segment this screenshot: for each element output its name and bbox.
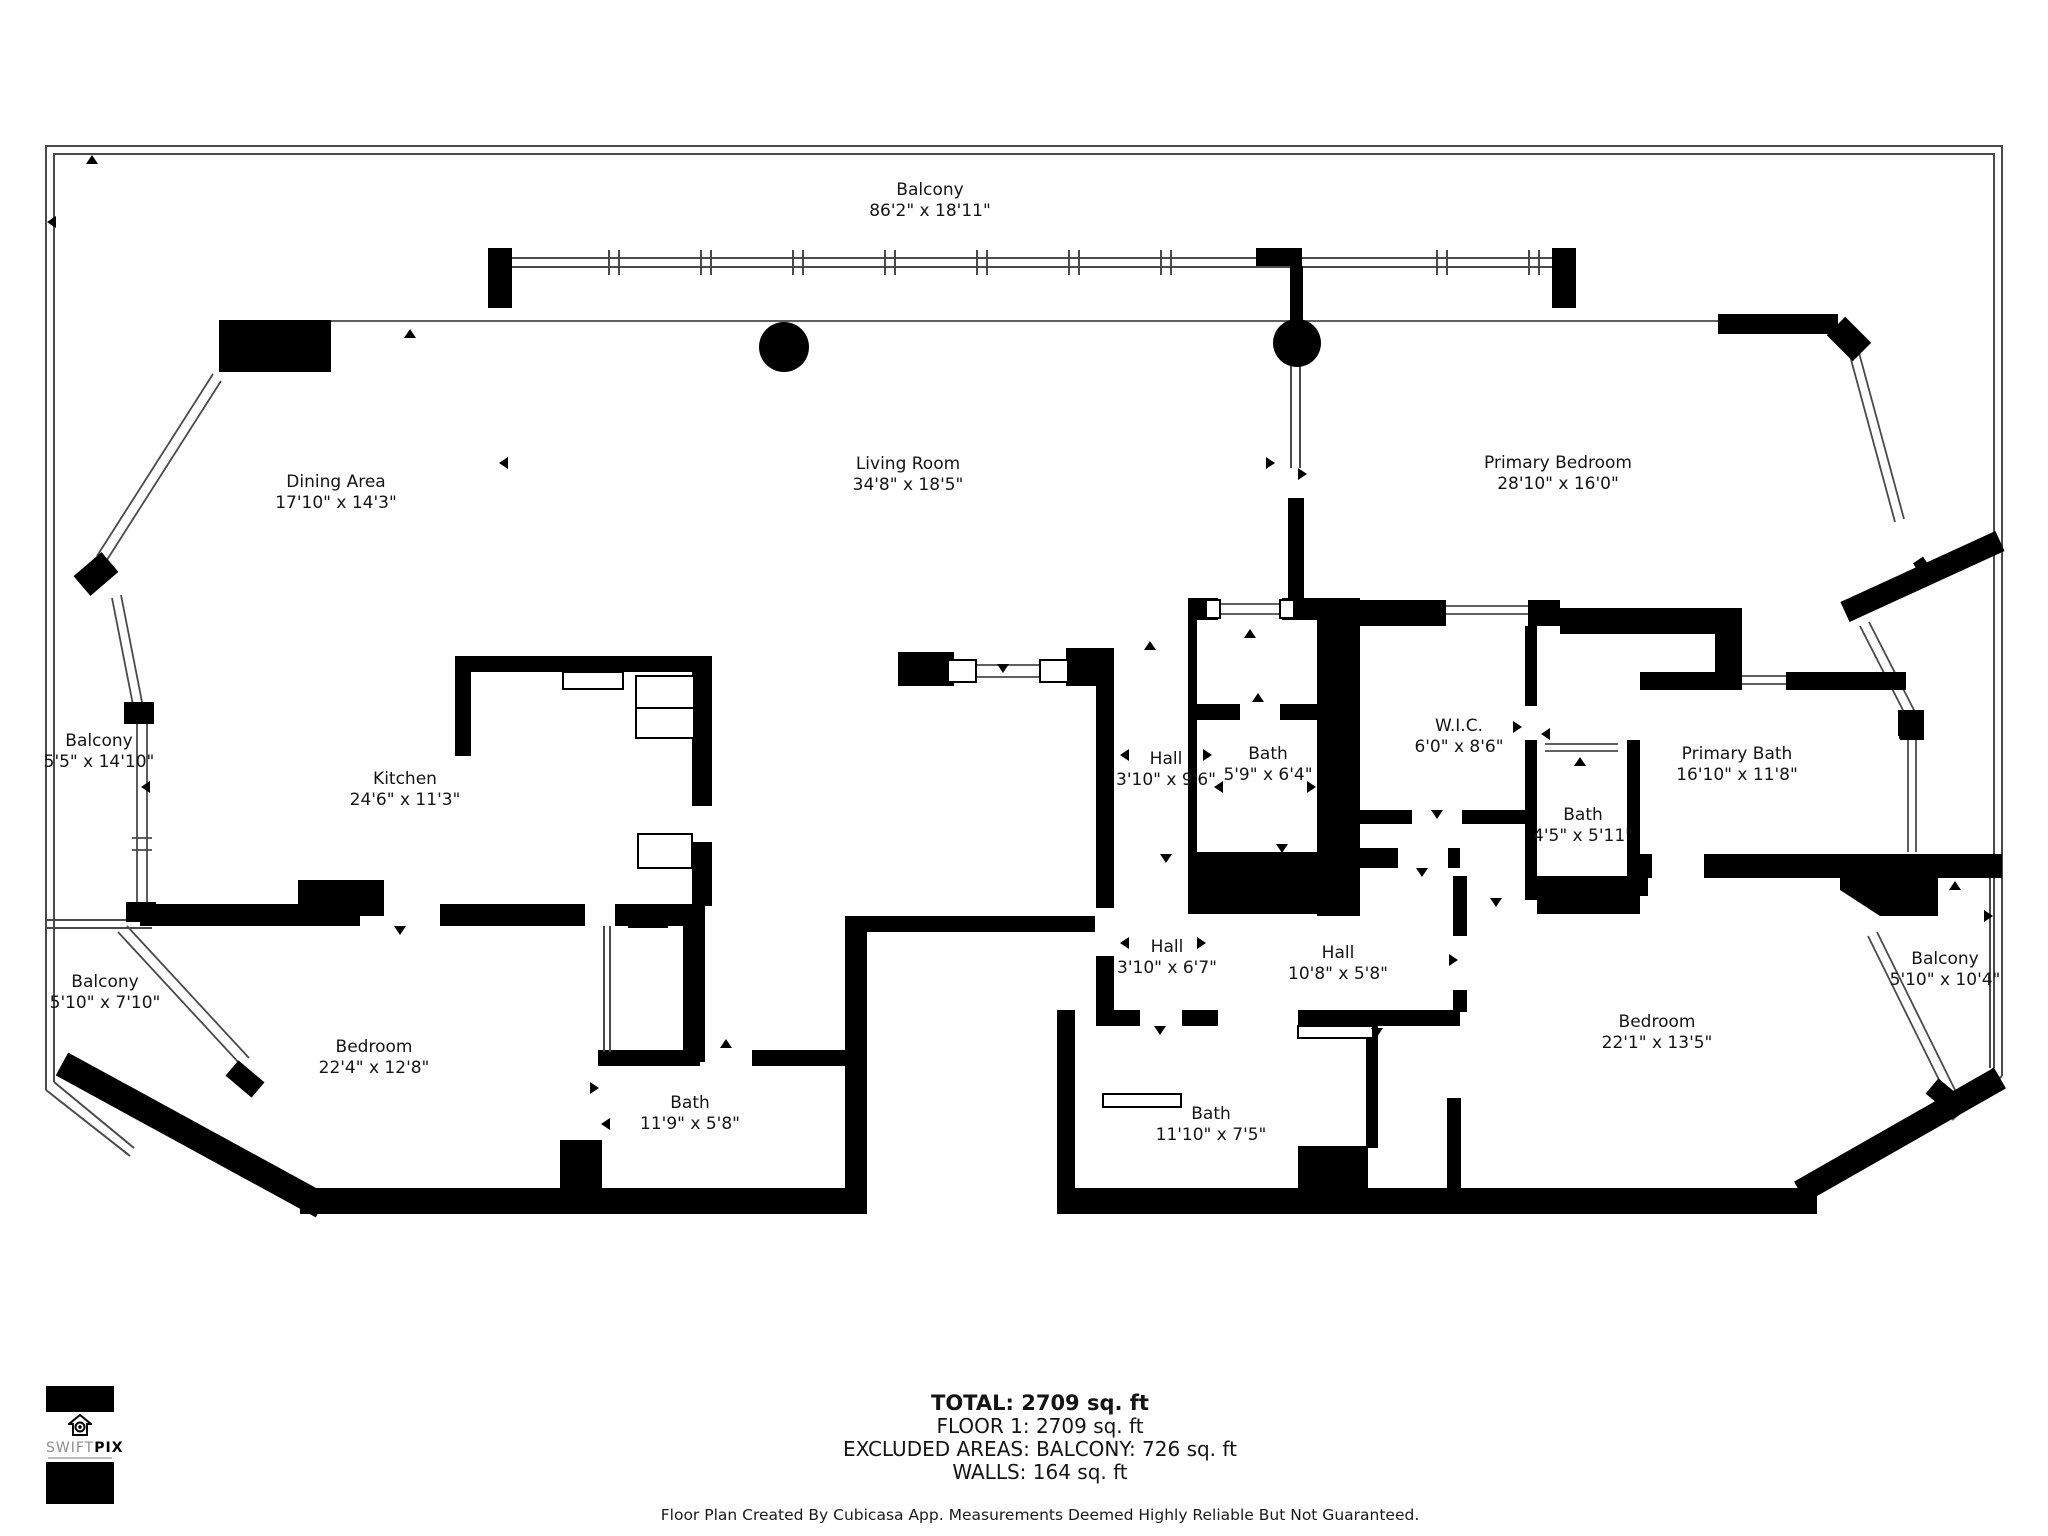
room-label-hall-lower: Hall3'10" x 6'7" — [1117, 937, 1217, 979]
boundary-lines — [46, 146, 2002, 1156]
house-camera-icon — [68, 1414, 92, 1436]
room-label-balcony-left: Balcony5'5" x 14'10" — [44, 731, 155, 773]
room-label-balcony-lower-left: Balcony5'10" x 7'10" — [50, 972, 161, 1014]
excluded-area-text: EXCLUDED AREAS: BALCONY: 726 sq. ft — [843, 1438, 1237, 1461]
balcony-railing — [512, 250, 1552, 275]
logo-block-top — [46, 1386, 114, 1412]
logo-tagline-rule — [48, 1457, 112, 1459]
column-icons — [759, 319, 1321, 372]
room-label-kitchen: Kitchen24'6" x 11'3" — [350, 769, 461, 811]
floor-plan-page: Balcony86'2" x 18'11" Dining Area17'10" … — [0, 0, 2048, 1536]
room-label-balcony-top: Balcony86'2" x 18'11" — [869, 180, 991, 222]
room-label-hall-wide: Hall10'8" x 5'8" — [1288, 943, 1388, 985]
logo-block-bottom — [46, 1462, 114, 1504]
room-label-primary-bath: Primary Bath16'10" x 11'8" — [1676, 744, 1798, 786]
floor-area-text: FLOOR 1: 2709 sq. ft — [843, 1415, 1237, 1438]
room-label-bath-small: Bath4'5" x 5'11" — [1533, 805, 1633, 847]
room-label-hall-upper: Hall3'10" x 9'6" — [1116, 749, 1216, 791]
logo-brand-text: SWIFTPIX — [46, 1441, 114, 1455]
room-label-bath-left: Bath11'9" x 5'8" — [640, 1093, 740, 1135]
room-label-dining-area: Dining Area17'10" x 14'3" — [275, 472, 397, 514]
window-lines — [97, 321, 1955, 1094]
room-label-balcony-right: Balcony5'10" x 10'4" — [1890, 949, 2001, 991]
room-label-bedroom-left: Bedroom22'4" x 12'8" — [319, 1037, 430, 1079]
room-label-bath-center: Bath5'9" x 6'4" — [1223, 744, 1312, 786]
railing-mullions — [609, 250, 1539, 275]
room-label-living-room: Living Room34'8" x 18'5" — [853, 454, 964, 496]
room-label-bath-right: Bath11'10" x 7'5" — [1156, 1104, 1267, 1146]
walls-area-text: WALLS: 164 sq. ft — [843, 1461, 1237, 1484]
disclaimer-text: Floor Plan Created By Cubicasa App. Meas… — [661, 1506, 1420, 1524]
room-label-bedroom-right: Bedroom22'1" x 13'5" — [1602, 1012, 1713, 1054]
total-area-text: TOTAL: 2709 sq. ft — [843, 1392, 1237, 1415]
area-summary: TOTAL: 2709 sq. ft FLOOR 1: 2709 sq. ft … — [843, 1392, 1237, 1484]
swiftpix-logo: SWIFTPIX — [46, 1386, 114, 1504]
room-label-wic: W.I.C.6'0" x 8'6" — [1414, 716, 1503, 758]
room-label-primary-bedroom: Primary Bedroom28'10" x 16'0" — [1484, 453, 1632, 495]
